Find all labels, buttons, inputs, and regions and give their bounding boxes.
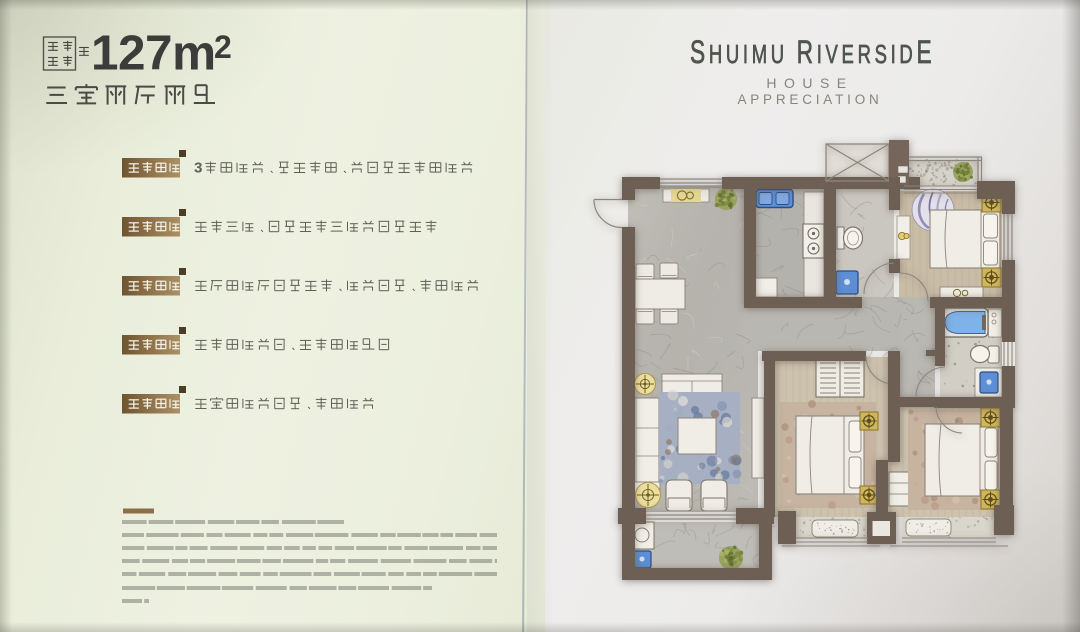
svg-text:127m: 127m — [91, 26, 216, 81]
svg-text:2: 2 — [214, 29, 232, 65]
svg-text:3: 3 — [194, 159, 202, 176]
